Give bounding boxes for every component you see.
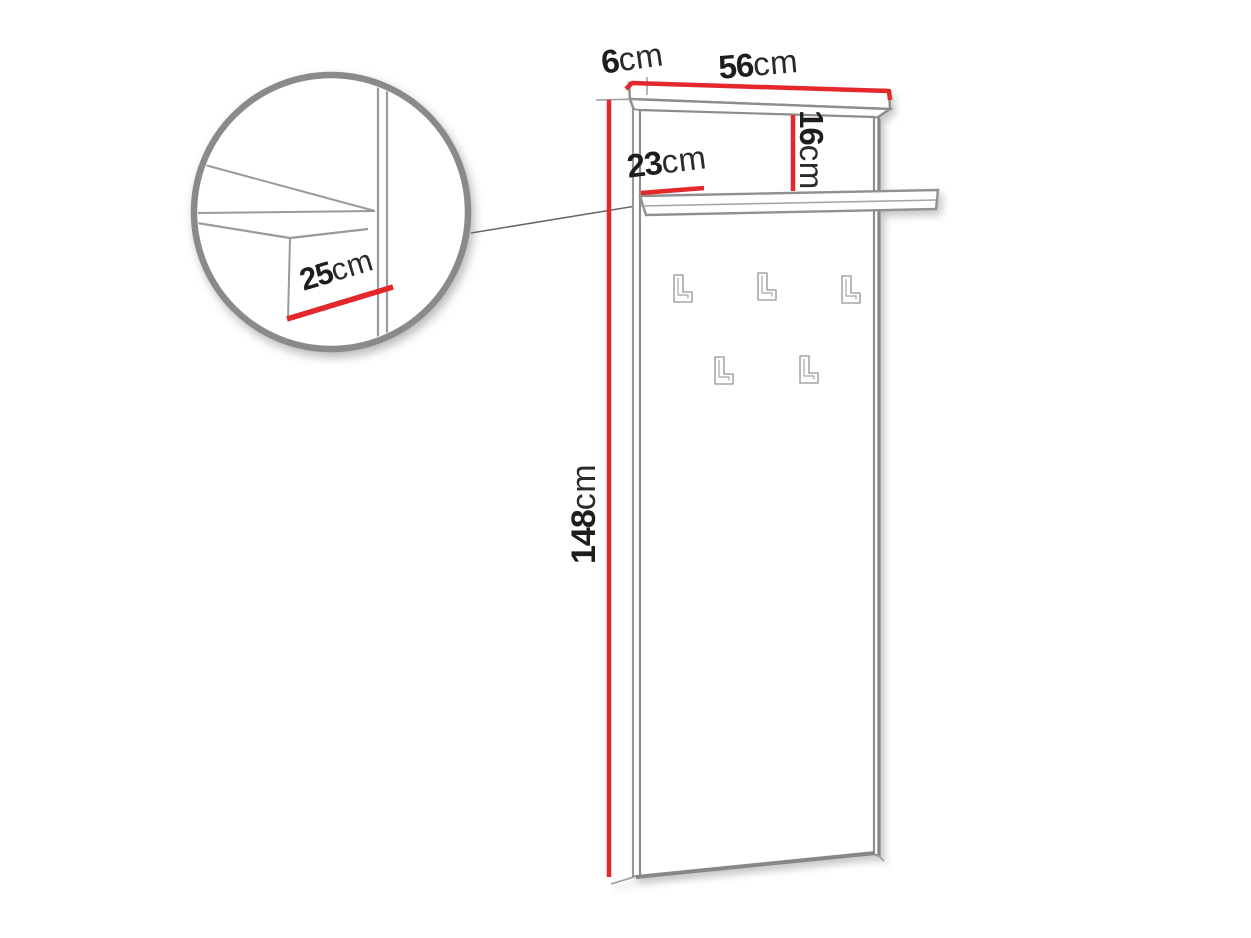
dim-value: 16 bbox=[793, 110, 830, 145]
dim-label-height: 148cm bbox=[567, 464, 601, 564]
dim-unit: cm bbox=[751, 42, 799, 83]
leader-line bbox=[471, 205, 642, 233]
page-canvas: 6cm 56cm 16cm 23cm 148cm 25cm bbox=[0, 0, 1251, 938]
panel-front-face bbox=[640, 110, 874, 877]
dim-unit: cm bbox=[659, 138, 708, 180]
dim-value: 56 bbox=[717, 46, 755, 86]
dim-value: 148 bbox=[565, 510, 603, 564]
dim-label-depth: 6cm bbox=[599, 37, 665, 78]
dim-unit: cm bbox=[565, 464, 603, 510]
dim-value: 23 bbox=[625, 144, 664, 185]
diagram-svg bbox=[0, 0, 1251, 938]
dim-label-shelf-offset: 23cm bbox=[625, 140, 708, 182]
height-dimension-top-tick bbox=[596, 99, 644, 100]
dim-unit: cm bbox=[616, 35, 666, 78]
panel-bottom-left-corner-edge bbox=[611, 877, 634, 884]
dim-label-width: 56cm bbox=[717, 44, 799, 84]
detail-circle bbox=[194, 60, 468, 365]
dim-label-shelf-drop: 16cm bbox=[795, 110, 828, 190]
panel-assembly bbox=[611, 83, 938, 884]
dim-unit: cm bbox=[793, 145, 830, 190]
